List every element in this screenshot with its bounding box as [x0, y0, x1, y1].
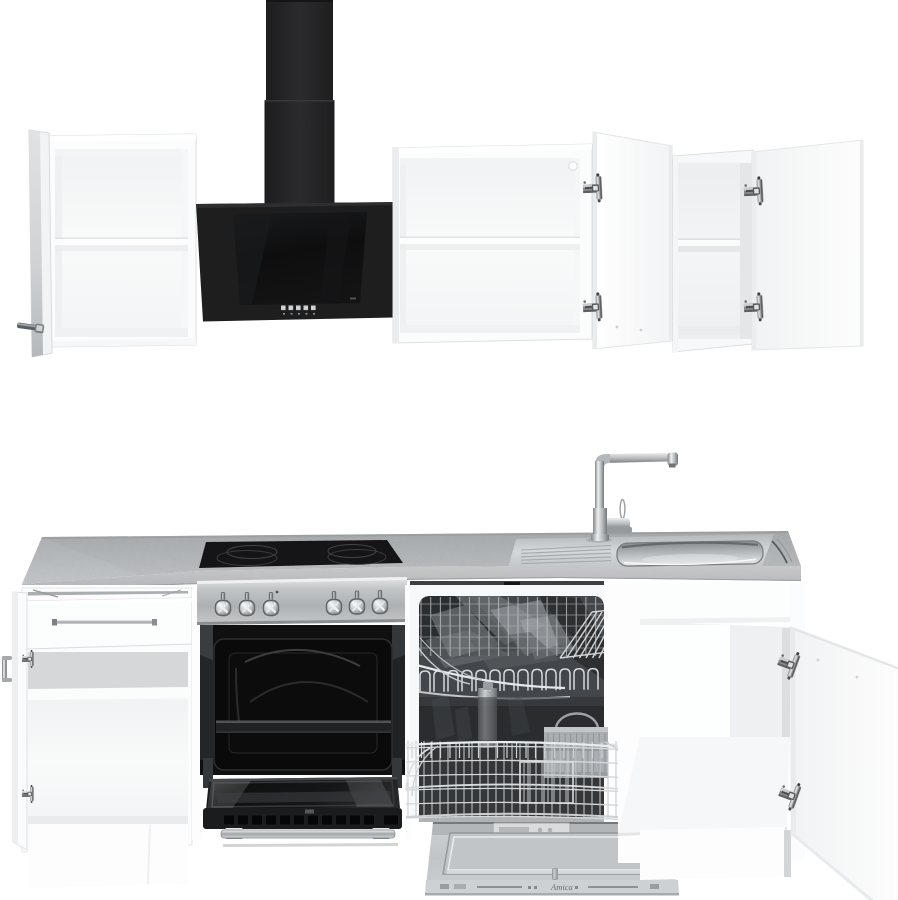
svg-text:Amica: Amica: [550, 882, 573, 892]
